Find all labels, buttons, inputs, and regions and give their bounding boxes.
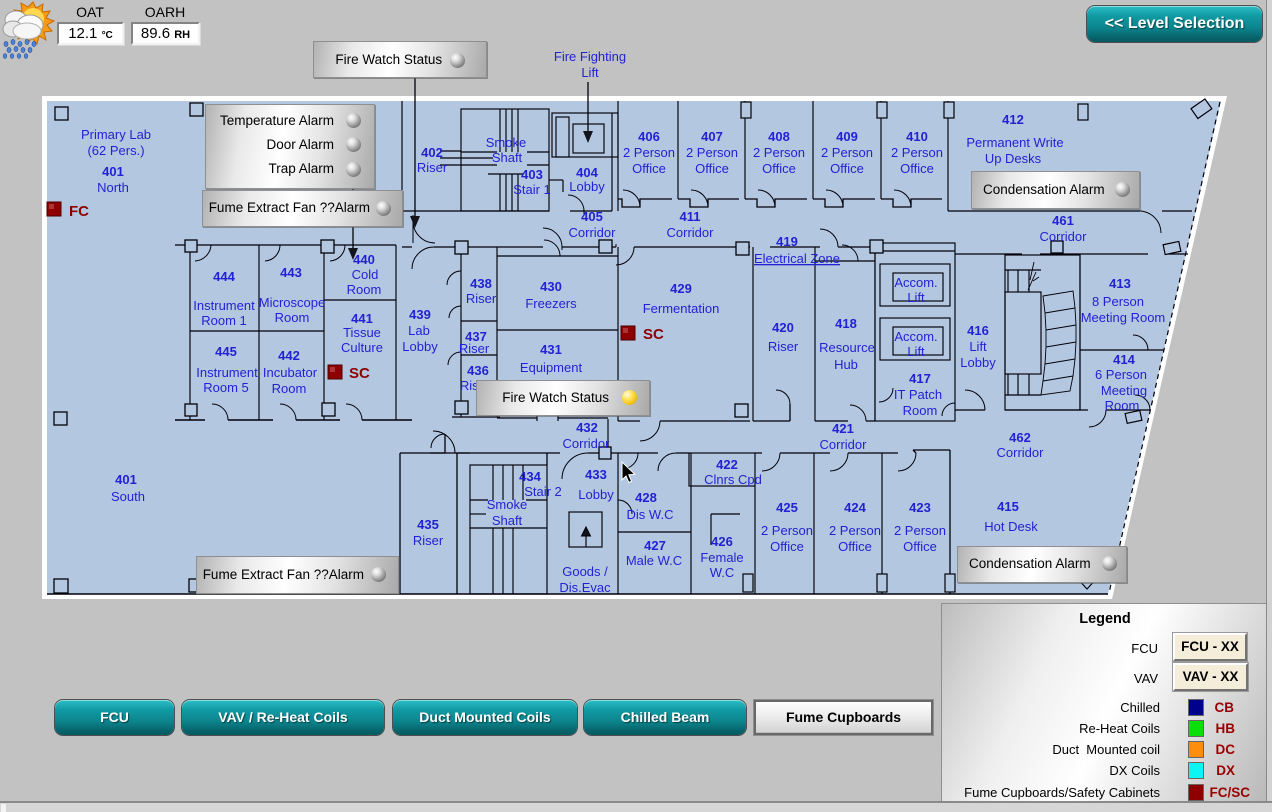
svg-text:Instrument: Instrument <box>193 298 255 313</box>
svg-text:2 Person: 2 Person <box>623 145 675 160</box>
svg-text:415: 415 <box>997 499 1019 514</box>
svg-text:Dis W.C: Dis W.C <box>627 507 674 522</box>
svg-text:Office: Office <box>830 161 864 176</box>
svg-text:406: 406 <box>638 129 660 144</box>
svg-text:425: 425 <box>776 500 798 515</box>
svg-text:2 Person: 2 Person <box>891 145 943 160</box>
svg-text:Fermentation: Fermentation <box>643 301 720 316</box>
svg-text:Lobby: Lobby <box>960 355 996 370</box>
svg-text:462: 462 <box>1009 430 1031 445</box>
svg-text:Riser: Riser <box>768 339 799 354</box>
svg-text:403: 403 <box>521 167 543 182</box>
svg-text:6 Person: 6 Person <box>1095 367 1147 382</box>
svg-text:431: 431 <box>540 342 562 357</box>
svg-text:Clnrs Cpd: Clnrs Cpd <box>704 472 762 487</box>
svg-text:Instrument: Instrument <box>196 365 258 380</box>
svg-text:Room: Room <box>275 310 310 325</box>
svg-text:Room: Room <box>272 381 307 396</box>
svg-text:420: 420 <box>772 320 794 335</box>
svg-text:Corridor: Corridor <box>569 225 617 240</box>
svg-text:Office: Office <box>903 539 937 554</box>
svg-text:412: 412 <box>1002 112 1024 127</box>
svg-text:443: 443 <box>280 265 302 280</box>
svg-text:Riser: Riser <box>466 291 497 306</box>
svg-text:439: 439 <box>409 307 431 322</box>
svg-text:Hub: Hub <box>834 357 858 372</box>
svg-text:2 Person: 2 Person <box>761 523 813 538</box>
svg-text:422: 422 <box>716 457 738 472</box>
svg-text:444: 444 <box>213 269 235 284</box>
svg-text:417: 417 <box>909 371 931 386</box>
svg-text:418: 418 <box>835 316 857 331</box>
svg-text:Lift: Lift <box>969 339 987 354</box>
svg-text:Accom.: Accom. <box>894 329 937 344</box>
svg-text:Accom.: Accom. <box>894 275 937 290</box>
svg-text:Office: Office <box>838 539 872 554</box>
svg-text:2 Person: 2 Person <box>821 145 873 160</box>
svg-text:433: 433 <box>585 467 607 482</box>
svg-text:436: 436 <box>467 363 489 378</box>
svg-text:Room: Room <box>347 282 382 297</box>
svg-text:Permanent Write: Permanent Write <box>966 135 1063 150</box>
svg-text:Stair 2: Stair 2 <box>524 484 562 499</box>
svg-text:2 Person: 2 Person <box>753 145 805 160</box>
svg-text:Shaft: Shaft <box>492 513 523 528</box>
svg-text:438: 438 <box>470 276 492 291</box>
svg-text:Office: Office <box>900 161 934 176</box>
svg-text:Stair 1: Stair 1 <box>513 182 551 197</box>
svg-text:445: 445 <box>215 344 237 359</box>
svg-text:Tissue: Tissue <box>343 325 381 340</box>
svg-text:Culture: Culture <box>341 340 383 355</box>
svg-text:428: 428 <box>635 490 657 505</box>
svg-text:(62 Pers.): (62 Pers.) <box>87 143 144 158</box>
svg-text:Up Desks: Up Desks <box>985 151 1042 166</box>
svg-text:Office: Office <box>770 539 804 554</box>
svg-text:Lobby: Lobby <box>402 339 438 354</box>
svg-text:414: 414 <box>1113 352 1135 367</box>
svg-text:Corridor: Corridor <box>997 445 1045 460</box>
svg-text:Freezers: Freezers <box>525 296 577 311</box>
svg-text:2 Person: 2 Person <box>894 523 946 538</box>
svg-text:Room 5: Room 5 <box>203 380 249 395</box>
svg-text:Resource: Resource <box>819 340 875 355</box>
svg-text:Riser: Riser <box>413 533 444 548</box>
svg-text:Smoke: Smoke <box>487 497 527 512</box>
svg-text:Lobby: Lobby <box>569 179 605 194</box>
svg-text:440: 440 <box>353 252 375 267</box>
svg-text:Office: Office <box>632 161 666 176</box>
svg-text:Primary Lab: Primary Lab <box>81 127 151 142</box>
svg-text:427: 427 <box>644 538 666 553</box>
svg-text:416: 416 <box>967 323 989 338</box>
svg-text:Lab: Lab <box>408 323 430 338</box>
svg-text:Meeting: Meeting <box>1101 383 1147 398</box>
svg-text:411: 411 <box>680 209 701 224</box>
svg-text:405: 405 <box>581 209 603 224</box>
svg-text:423: 423 <box>909 500 931 515</box>
svg-text:Smoke: Smoke <box>486 135 526 150</box>
svg-text:421: 421 <box>832 421 854 436</box>
svg-text:Meeting Room: Meeting Room <box>1081 310 1166 325</box>
svg-text:SC: SC <box>643 326 664 343</box>
svg-text:Riser: Riser <box>417 160 448 175</box>
svg-text:401: 401 <box>102 164 124 179</box>
svg-text:432: 432 <box>576 420 598 435</box>
svg-text:Microscope: Microscope <box>259 295 325 310</box>
svg-text:Shaft: Shaft <box>492 150 523 165</box>
svg-text:426: 426 <box>711 534 733 549</box>
svg-text:2 Person: 2 Person <box>829 523 881 538</box>
svg-text:Goods /: Goods / <box>562 564 608 579</box>
svg-text:407: 407 <box>701 129 723 144</box>
svg-text:401: 401 <box>115 472 137 487</box>
svg-text:Corridor: Corridor <box>563 436 611 451</box>
svg-text:435: 435 <box>417 517 439 532</box>
svg-text:IT Patch: IT Patch <box>894 387 942 402</box>
svg-text:Lift: Lift <box>907 290 925 305</box>
svg-text:429: 429 <box>670 281 692 296</box>
svg-text:Fire Fighting: Fire Fighting <box>554 49 626 64</box>
svg-text:410: 410 <box>906 129 928 144</box>
svg-text:W.C: W.C <box>710 565 735 580</box>
svg-text:SC: SC <box>349 365 370 382</box>
svg-text:Incubator: Incubator <box>263 365 318 380</box>
svg-text:442: 442 <box>278 348 300 363</box>
svg-text:Cold: Cold <box>352 267 379 282</box>
svg-text:North: North <box>97 180 129 195</box>
svg-text:404: 404 <box>576 165 598 180</box>
svg-text:Corridor: Corridor <box>820 437 868 452</box>
svg-text:FC: FC <box>69 203 89 220</box>
svg-text:Female: Female <box>700 550 743 565</box>
svg-text:Dis.Evac: Dis.Evac <box>559 580 611 595</box>
svg-text:Room: Room <box>1105 398 1140 413</box>
svg-text:413: 413 <box>1109 276 1131 291</box>
svg-text:Corridor: Corridor <box>667 225 715 240</box>
svg-text:Lobby: Lobby <box>578 487 614 502</box>
svg-text:Equipment: Equipment <box>520 360 583 375</box>
svg-text:Riser: Riser <box>459 341 490 356</box>
svg-text:430: 430 <box>540 279 562 294</box>
svg-text:Lift: Lift <box>581 65 599 80</box>
svg-text:408: 408 <box>768 129 790 144</box>
svg-text:461: 461 <box>1052 213 1074 228</box>
svg-text:419: 419 <box>776 234 798 249</box>
svg-text:Room 1: Room 1 <box>201 313 247 328</box>
svg-text:424: 424 <box>844 500 866 515</box>
svg-text:Corridor: Corridor <box>1040 229 1088 244</box>
svg-text:Electrical Zone: Electrical Zone <box>754 251 840 266</box>
svg-text:Room: Room <box>903 403 938 418</box>
svg-text:Office: Office <box>762 161 796 176</box>
svg-text:Office: Office <box>695 161 729 176</box>
svg-text:434: 434 <box>519 469 541 484</box>
svg-text:402: 402 <box>421 145 443 160</box>
svg-text:Hot Desk: Hot Desk <box>984 519 1038 534</box>
svg-text:2 Person: 2 Person <box>686 145 738 160</box>
svg-text:8 Person: 8 Person <box>1092 294 1144 309</box>
svg-text:Lift: Lift <box>907 344 925 359</box>
svg-text:441: 441 <box>351 311 373 326</box>
svg-text:Male W.C: Male W.C <box>626 553 682 568</box>
svg-text:South: South <box>111 489 145 504</box>
svg-text:409: 409 <box>836 129 858 144</box>
